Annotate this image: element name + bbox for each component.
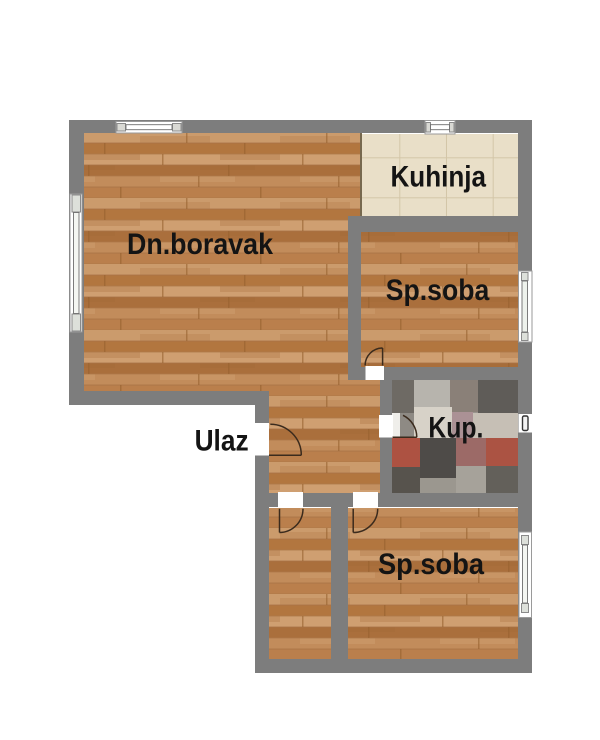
svg-text:Kup.: Kup. [428,411,483,444]
svg-text:Sp.soba: Sp.soba [386,274,490,307]
svg-text:Sp.soba: Sp.soba [378,548,484,581]
svg-text:Dn.boravak: Dn.boravak [127,228,273,261]
svg-text:Ulaz: Ulaz [195,425,249,458]
svg-text:Kuhinja: Kuhinja [391,161,487,194]
